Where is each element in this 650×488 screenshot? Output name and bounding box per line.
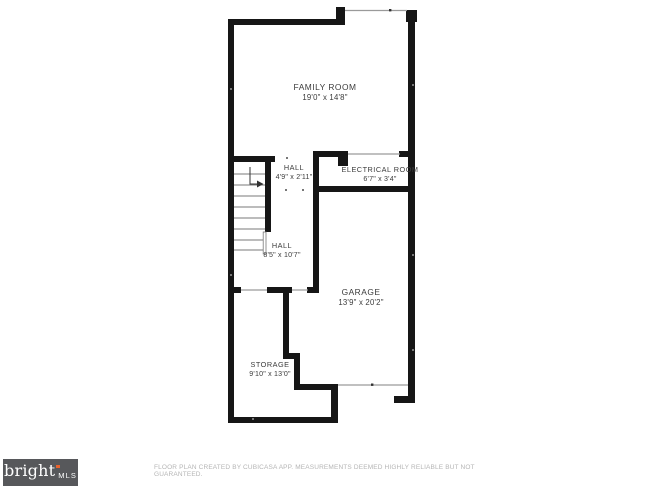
room-label-electrical-room: ELECTRICAL ROOM6'7" x 3'4" [342, 166, 419, 183]
room-dimensions: 8'5" x 10'7" [263, 252, 300, 259]
room-dimensions: 4'9" x 2'11" [276, 174, 313, 181]
measurement-ticks [230, 9, 414, 420]
room-label-garage: GARAGE13'9" x 20'2" [338, 288, 383, 307]
room-label-hall-upper: HALL4'9" x 2'11" [276, 164, 313, 181]
room-label-storage: STORAGE9'10" x 13'0" [249, 361, 291, 378]
floorplan-page: FAMILY ROOM19'0" x 14'8"HALL4'9" x 2'11"… [0, 0, 650, 488]
brightmls-logo-accent-mark [56, 465, 60, 468]
room-name: HALL [276, 164, 313, 171]
brightmls-logo-brand-text: bright [4, 463, 55, 479]
brightmls-logo: bright MLS [3, 459, 78, 486]
staircase [234, 167, 266, 254]
room-dimensions: 19'0" x 14'8" [294, 94, 357, 102]
room-name: FAMILY ROOM [294, 83, 357, 91]
room-dimensions: 13'9" x 20'2" [338, 299, 383, 307]
room-name: STORAGE [249, 361, 291, 368]
floorplan-drawing [0, 0, 650, 488]
stair-direction-arrow [257, 181, 264, 188]
brightmls-logo-suffix-text: MLS [58, 471, 77, 480]
room-name: ELECTRICAL ROOM [342, 166, 419, 173]
room-dimensions: 6'7" x 3'4" [342, 176, 419, 183]
room-label-family-room: FAMILY ROOM19'0" x 14'8" [294, 83, 357, 102]
room-name: HALL [263, 242, 300, 249]
stair-direction-line [250, 167, 257, 184]
room-name: GARAGE [338, 288, 383, 296]
floorplan-disclaimer: FLOOR PLAN CREATED BY CUBICASA APP. MEAS… [154, 464, 524, 478]
room-dimensions: 9'10" x 13'0" [249, 371, 291, 378]
room-label-hall-lower: HALL8'5" x 10'7" [263, 242, 300, 259]
